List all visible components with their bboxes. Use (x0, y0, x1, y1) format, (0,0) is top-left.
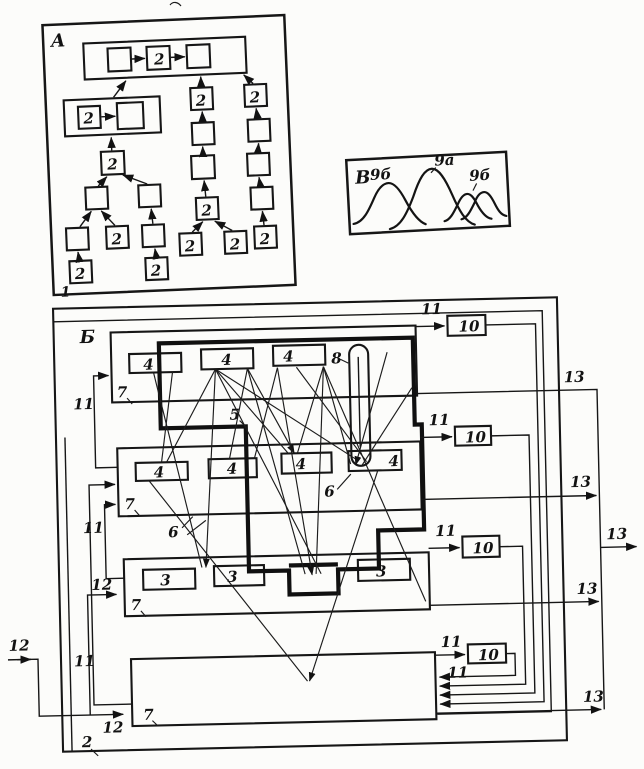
scan-artifact (170, 2, 181, 6)
bell-curve-right-2 (460, 191, 506, 219)
node-label: 2 (258, 230, 270, 248)
node-label: 2 (82, 109, 94, 127)
arrow (123, 174, 147, 185)
unit4-label: 4 (295, 455, 306, 473)
wire-11 (420, 437, 452, 438)
node (250, 187, 273, 210)
wire-11-label: 11 (447, 663, 468, 681)
unit4-block (281, 452, 331, 473)
node (186, 44, 210, 68)
wire-11 (416, 326, 445, 327)
node-label: 2 (153, 50, 165, 68)
node (247, 153, 270, 176)
row2-label: 7 (124, 495, 135, 513)
wire-12-label: 12 (102, 718, 123, 736)
node-label: 2 (248, 88, 260, 106)
unit4-label: 4 (221, 351, 232, 369)
wire-11-label: 11 (428, 411, 449, 429)
arrow (258, 143, 259, 152)
panel-v: В 9б 9а 9б (346, 148, 510, 234)
node-label: 2 (74, 265, 86, 283)
peak-label-main: 9а (434, 151, 455, 170)
leader (187, 520, 206, 534)
sensor-label: 8 (331, 349, 342, 367)
node-label: 2 (110, 230, 122, 248)
panel-b-title: Б (78, 327, 95, 348)
arrow (204, 181, 206, 197)
wire-11-label: 11 (83, 519, 104, 537)
panel-b: Б 2 7 7 7 7 4 4 4 8 4 4 4 (0, 296, 641, 758)
feedback-line (65, 438, 72, 751)
arrow (132, 58, 145, 59)
arrow (244, 74, 253, 83)
diagram-canvas: A 1 2 2 2 2 2 2 (0, 0, 644, 769)
panel-a: A 1 2 2 2 2 2 2 (42, 15, 295, 301)
node (138, 184, 161, 207)
arrow (101, 116, 115, 117)
unit3-label: 3 (160, 571, 171, 589)
unit3-block (214, 565, 264, 586)
row4-frame (131, 652, 436, 726)
wire-11-label: 11 (440, 633, 461, 651)
arrow (155, 249, 156, 257)
wire-12-label: 12 (91, 576, 112, 594)
feedback-11 (94, 375, 118, 467)
wire-11 (435, 655, 465, 656)
peak-label-right: 9б (469, 166, 491, 185)
scanned-diagram-page: A 1 2 2 2 2 2 2 (0, 0, 644, 769)
arrow (101, 210, 115, 226)
arrow (79, 211, 92, 226)
panel-v-title: В (354, 167, 371, 189)
wire-13-label: 13 (570, 473, 591, 491)
row1-label: 7 (117, 383, 128, 401)
unit4-label: 4 (143, 356, 154, 374)
node-label: 2 (183, 237, 195, 255)
panel-b-ref: 2 (81, 733, 93, 751)
unit4-label: 4 (388, 452, 399, 470)
bell-curve-right-1 (443, 193, 491, 221)
wire-13-label: 13 (576, 579, 597, 597)
panel-a-ref: 1 (60, 284, 70, 300)
arrow (262, 211, 264, 225)
node-label: 2 (149, 261, 161, 279)
unit4-block (273, 345, 325, 366)
row3-label: 7 (131, 596, 142, 614)
wire-11 (429, 548, 460, 549)
node (192, 122, 215, 145)
node-label: 2 (106, 155, 118, 173)
arrow (192, 222, 203, 232)
node-label: 2 (228, 235, 240, 253)
bus-13 (417, 389, 604, 713)
node (85, 187, 108, 210)
wire-13-label: 13 (606, 525, 627, 543)
node (191, 155, 215, 179)
arrow (259, 177, 260, 186)
arrow (171, 57, 185, 58)
arrow (78, 252, 79, 260)
node-label: 2 (200, 201, 212, 219)
sensor-core (358, 357, 360, 447)
wire-13 (421, 495, 596, 499)
arrow (215, 220, 232, 231)
counter-label: 10 (465, 428, 487, 446)
unit4-block (129, 353, 181, 373)
link-label: 6 (168, 523, 179, 541)
node (107, 48, 131, 72)
arrow (151, 209, 153, 224)
contour-box-top (289, 564, 338, 565)
link-label: 6 (324, 482, 335, 500)
wire-11-label: 11 (435, 522, 456, 540)
node (248, 119, 271, 142)
wire-11-label: 11 (74, 652, 95, 670)
unit4-label: 4 (154, 463, 165, 481)
wire-13-label: 13 (564, 368, 585, 386)
node (142, 224, 165, 247)
wire-13-label: 13 (583, 687, 604, 705)
peak-label-left: 9б (370, 165, 392, 184)
wire-12-label: 12 (8, 636, 29, 654)
arrow (98, 177, 107, 186)
unit4-label: 4 (283, 347, 294, 365)
wire-11-label: 11 (73, 395, 94, 413)
output-13 (601, 547, 637, 548)
node-label: 2 (194, 91, 206, 109)
leader (337, 474, 351, 489)
counter-label: 10 (472, 539, 494, 557)
input-12 (8, 657, 123, 717)
unit4-label: 4 (227, 460, 238, 478)
arrow (113, 81, 127, 98)
arrow (111, 137, 112, 150)
unit3-label: 3 (227, 568, 238, 586)
wire-13 (430, 601, 599, 605)
node (117, 102, 144, 129)
counter-label: 10 (458, 317, 480, 335)
node (66, 227, 89, 250)
wire-11-label: 11 (421, 300, 442, 318)
arrow (256, 108, 257, 118)
panel-a-title: A (49, 30, 66, 52)
counter-label: 10 (478, 646, 500, 664)
